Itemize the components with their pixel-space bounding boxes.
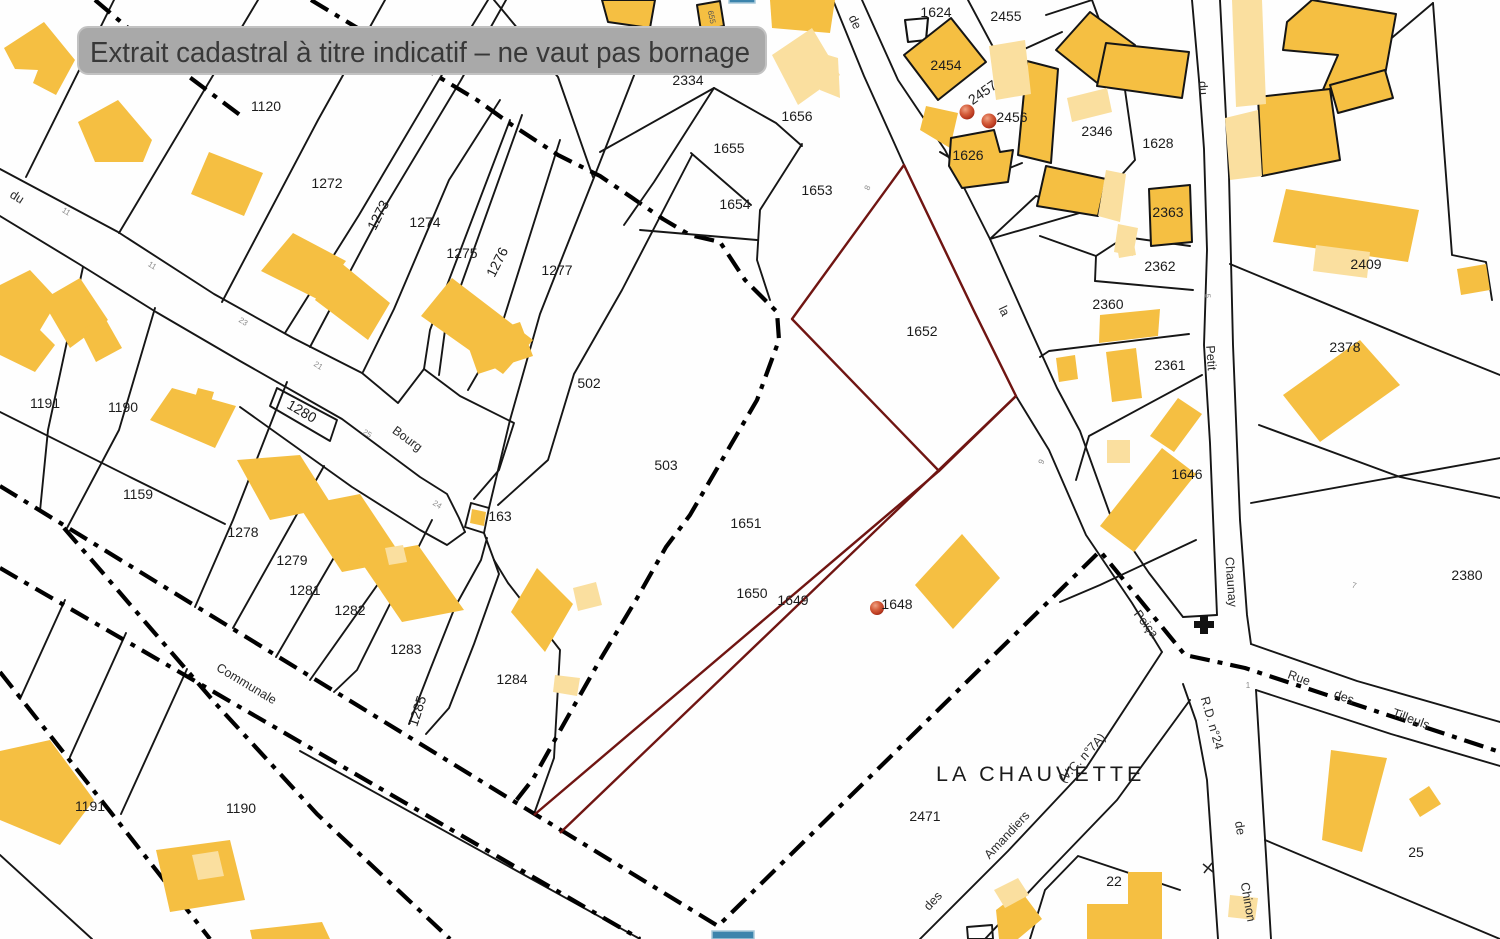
svg-text:1655: 1655 <box>713 140 744 156</box>
svg-text:1628: 1628 <box>1142 135 1173 151</box>
svg-text:1279: 1279 <box>276 552 307 568</box>
svg-text:1275: 1275 <box>446 245 477 261</box>
svg-text:1159: 1159 <box>123 486 153 502</box>
svg-text:1191: 1191 <box>30 395 60 411</box>
svg-text:1650: 1650 <box>736 585 767 601</box>
svg-text:2346: 2346 <box>1081 123 1112 139</box>
svg-text:1282: 1282 <box>334 602 365 618</box>
svg-text:2455: 2455 <box>990 8 1021 24</box>
svg-text:1284: 1284 <box>496 671 527 687</box>
svg-text:1190: 1190 <box>226 800 256 816</box>
svg-text:2409: 2409 <box>1350 256 1381 272</box>
svg-text:25: 25 <box>1408 844 1424 860</box>
svg-text:1652: 1652 <box>906 323 937 339</box>
svg-text:1648: 1648 <box>881 596 912 612</box>
svg-text:2454: 2454 <box>930 57 961 73</box>
svg-text:2471: 2471 <box>909 808 940 824</box>
svg-text:du: du <box>1196 81 1211 96</box>
svg-text:2378: 2378 <box>1329 339 1360 355</box>
svg-text:Petit: Petit <box>1203 345 1219 371</box>
svg-text:1651: 1651 <box>730 515 761 531</box>
svg-text:1626: 1626 <box>952 147 983 163</box>
svg-text:2456: 2456 <box>996 109 1027 125</box>
svg-text:22: 22 <box>1106 873 1122 889</box>
svg-text:1120: 1120 <box>251 98 281 114</box>
svg-text:2362: 2362 <box>1144 258 1175 274</box>
svg-text:1277: 1277 <box>541 262 572 278</box>
svg-text:1283: 1283 <box>390 641 421 657</box>
svg-text:502: 502 <box>577 375 601 391</box>
svg-text:2380: 2380 <box>1451 567 1482 583</box>
svg-text:1272: 1272 <box>311 175 342 191</box>
svg-text:LA CHAUVETTE: LA CHAUVETTE <box>936 762 1145 786</box>
svg-text:163: 163 <box>488 508 512 524</box>
svg-text:1653: 1653 <box>801 182 832 198</box>
svg-text:Extrait cadastral à titre indi: Extrait cadastral à titre indicatif – ne… <box>90 37 750 69</box>
svg-text:2363: 2363 <box>1152 204 1183 220</box>
svg-text:1191: 1191 <box>75 798 105 814</box>
svg-text:de: de <box>1232 820 1248 836</box>
svg-text:1: 1 <box>1246 681 1251 690</box>
svg-text:1624: 1624 <box>920 4 951 20</box>
svg-text:2360: 2360 <box>1092 296 1123 312</box>
svg-text:1656: 1656 <box>781 108 812 124</box>
svg-text:1649: 1649 <box>777 592 808 608</box>
svg-text:1646: 1646 <box>1171 466 1202 482</box>
svg-text:1281: 1281 <box>289 582 320 598</box>
svg-text:1654: 1654 <box>719 196 750 212</box>
svg-text:1190: 1190 <box>108 399 138 415</box>
svg-text:503: 503 <box>654 457 678 473</box>
svg-text:1274: 1274 <box>409 214 440 230</box>
svg-text:2361: 2361 <box>1154 357 1185 373</box>
svg-text:1278: 1278 <box>227 524 258 540</box>
